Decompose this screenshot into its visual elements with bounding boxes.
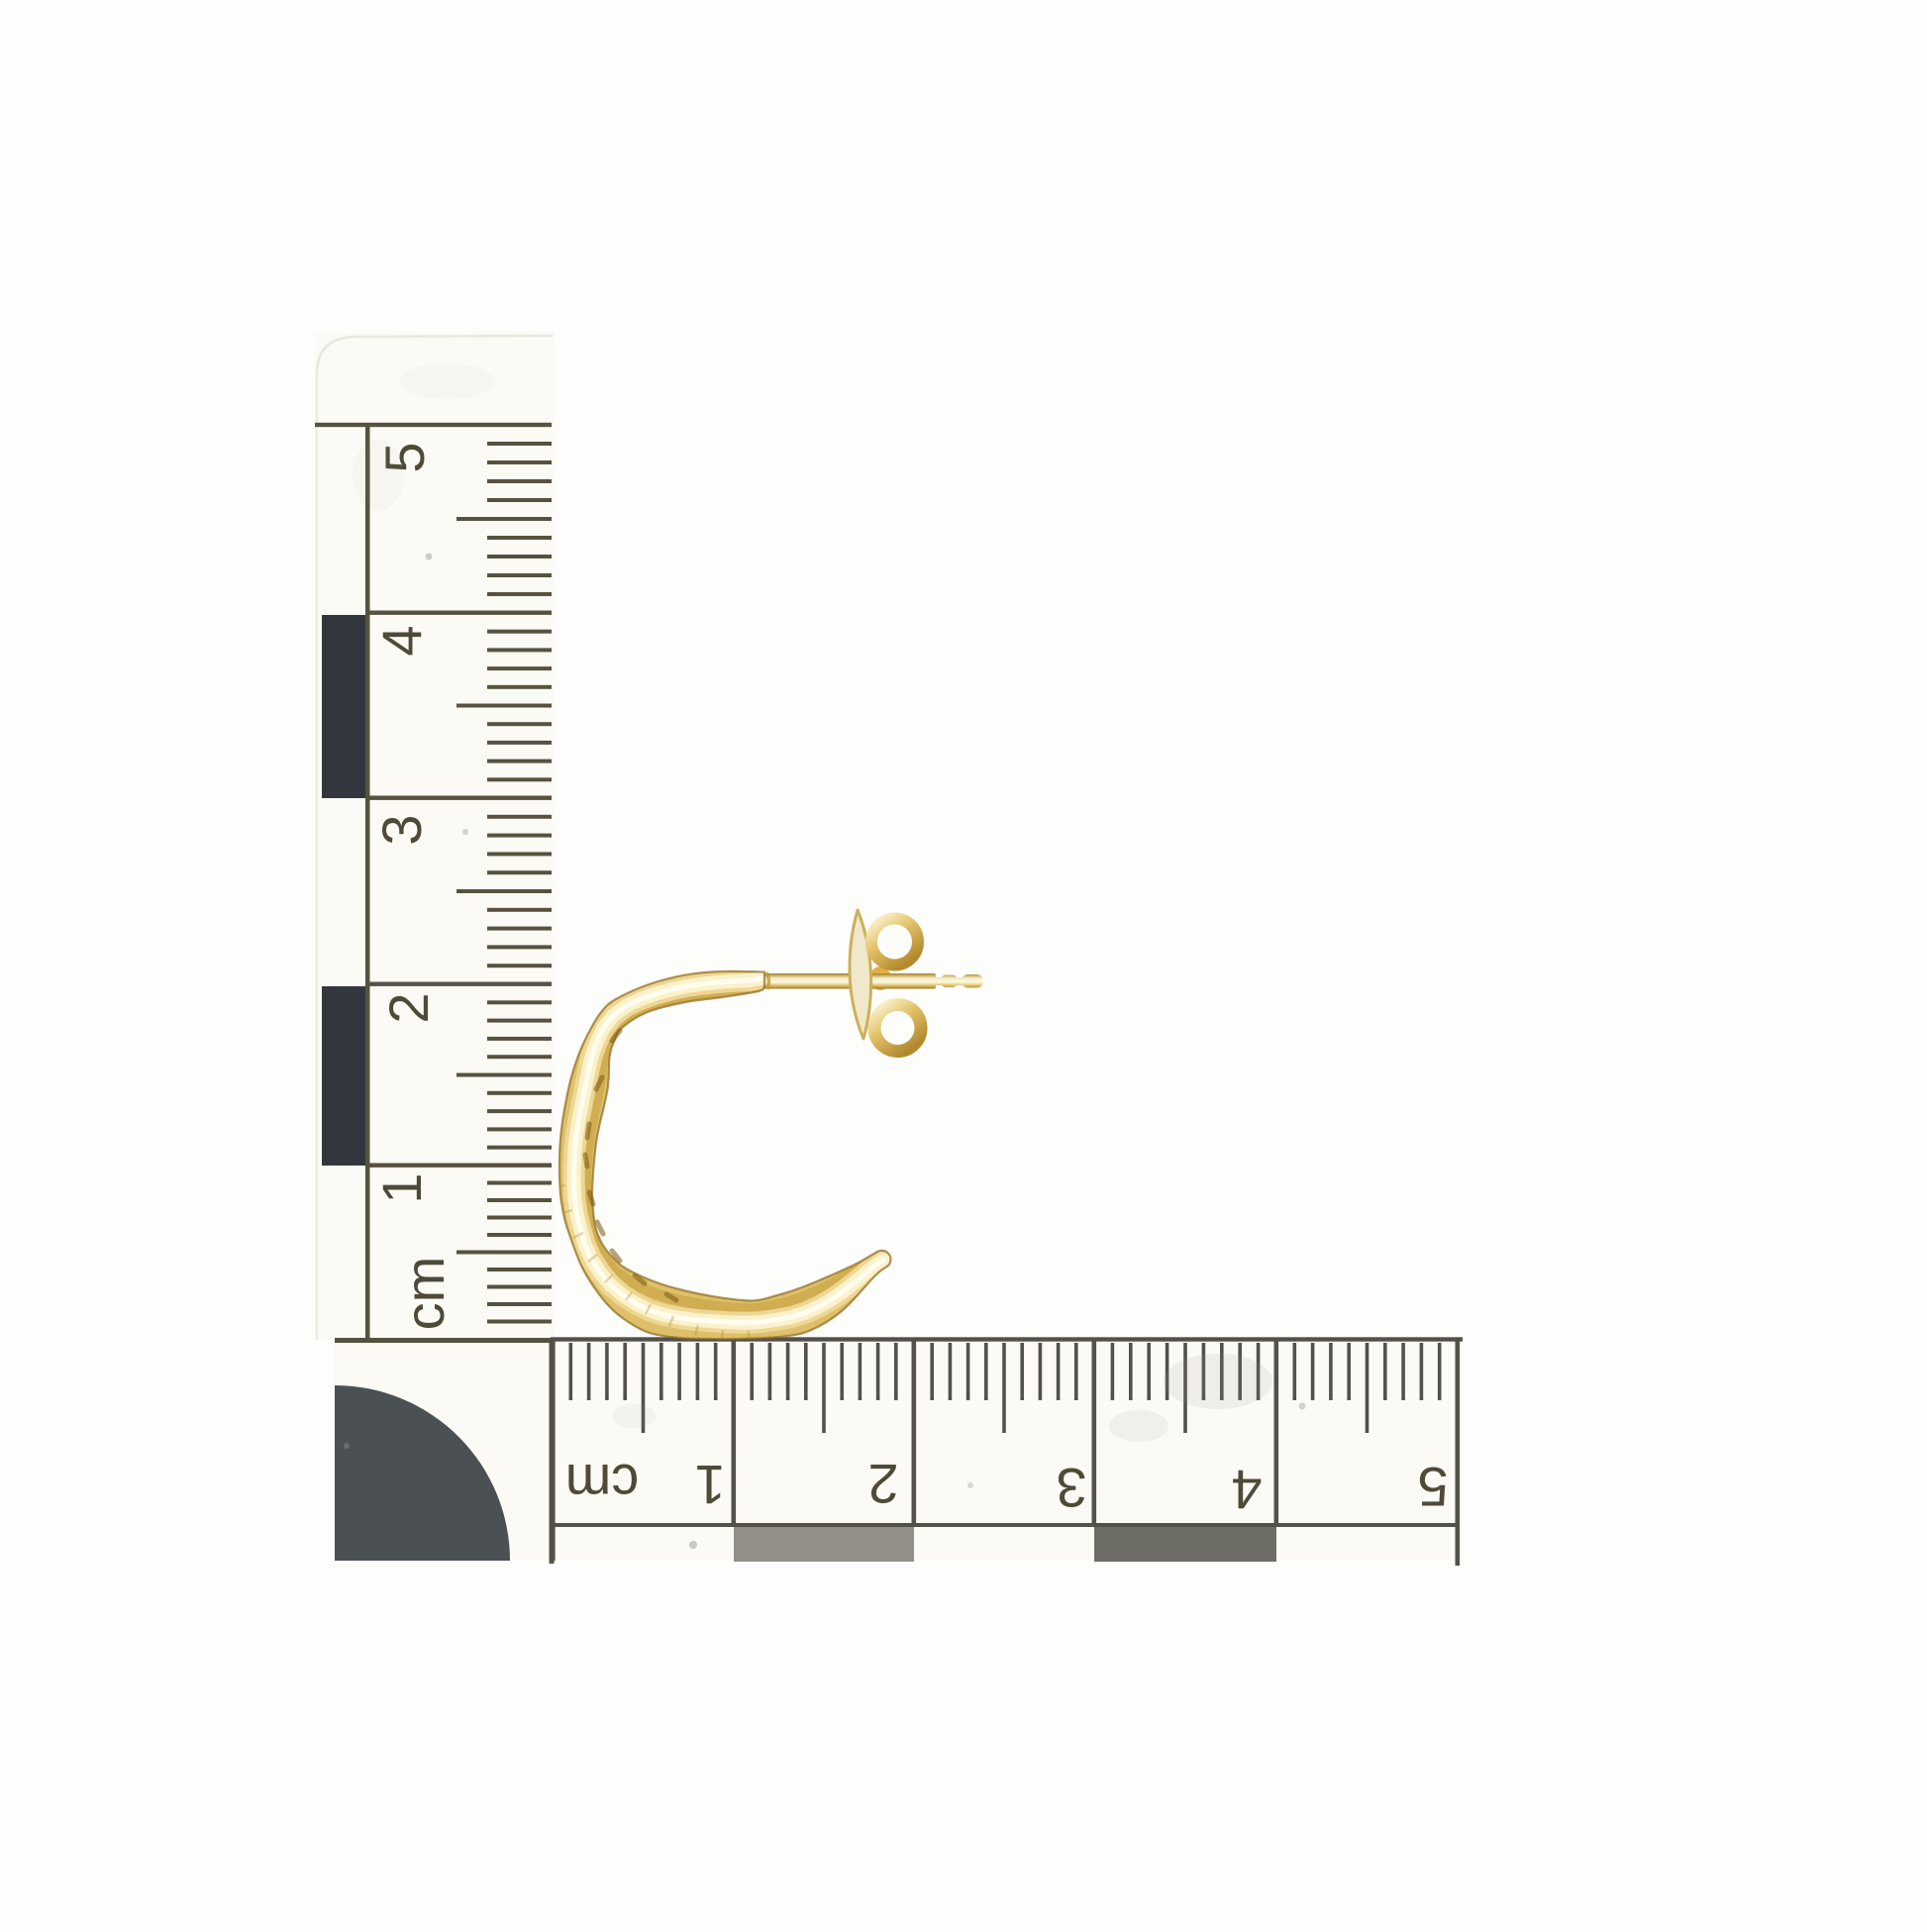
svg-text:cm: cm	[565, 1453, 640, 1515]
svg-text:2: 2	[867, 1453, 898, 1515]
svg-text:2: 2	[377, 992, 440, 1023]
svg-text:cm: cm	[393, 1257, 456, 1331]
svg-text:3: 3	[370, 814, 433, 845]
svg-text:4: 4	[1231, 1459, 1262, 1521]
svg-text:3: 3	[1056, 1457, 1086, 1519]
svg-text:4: 4	[370, 625, 433, 656]
svg-text:1: 1	[370, 1172, 433, 1203]
svg-text:1: 1	[694, 1454, 725, 1516]
svg-text:5: 5	[1417, 1456, 1448, 1518]
